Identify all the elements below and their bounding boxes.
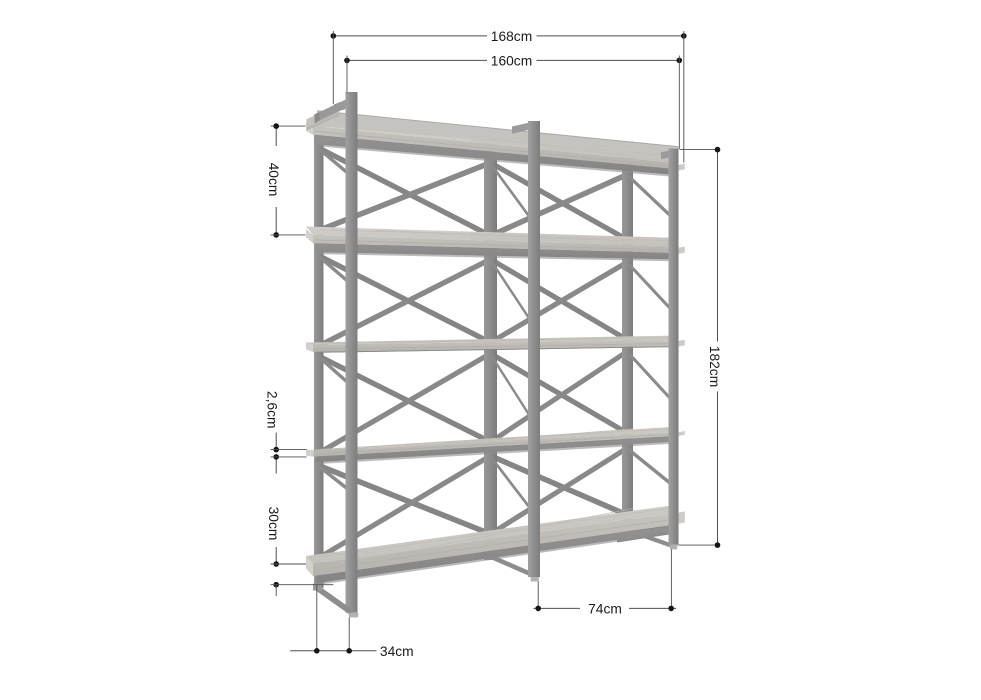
svg-text:34cm: 34cm <box>380 644 414 659</box>
svg-text:74cm: 74cm <box>588 601 622 616</box>
svg-text:40cm: 40cm <box>266 163 281 197</box>
svg-text:160cm: 160cm <box>491 53 532 68</box>
svg-text:30cm: 30cm <box>266 507 281 541</box>
svg-text:2,6cm: 2,6cm <box>265 391 280 429</box>
svg-text:168cm: 168cm <box>491 29 532 44</box>
svg-text:182cm: 182cm <box>707 346 722 387</box>
